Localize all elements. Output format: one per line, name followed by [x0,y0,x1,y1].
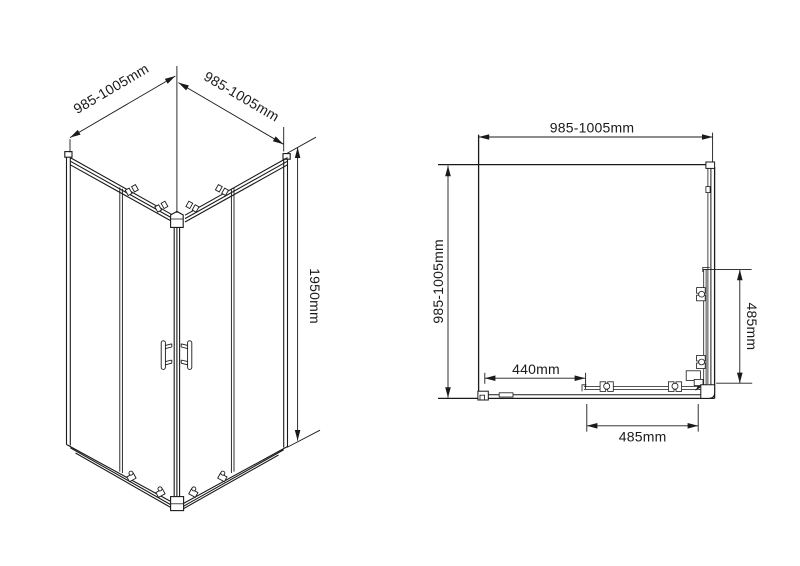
iso-dimension-labels: 985-1005mm 985-1005mm 1950mm [70,60,322,324]
plan-corner-block [701,385,715,399]
iso-dim-right-label: 985-1005mm [201,68,282,125]
plan-outline [438,135,715,400]
plan-top-right-wall-profile [706,162,715,168]
plan-view: 985-1005mm 985-1005mm 440mm 485mm 485mm [430,119,760,444]
iso-right-post [284,156,288,448]
iso-bottom-rail-right [184,447,288,509]
iso-left-post-cap [65,152,72,158]
iso-bottom-rail-left [67,445,171,508]
left-door-handle [161,341,165,370]
plan-dim-width-label: 985-1005mm [550,119,635,135]
iso-dim-left-label: 985-1005mm [70,60,151,117]
plan-right-bracket [706,187,710,193]
iso-dim-height-label: 1950mm [307,268,323,324]
plan-dim-door-width-right-label: 485mm [744,303,760,351]
plan-dim-depth-label: 985-1005mm [430,239,446,324]
iso-left-post [67,156,71,446]
plan-right-roller [697,288,706,301]
plan-track-bracket [499,393,513,397]
iso-right-panel-edge [231,187,234,473]
plan-bottom-roller [668,382,681,392]
iso-dimension-lines [70,66,320,447]
technical-drawing-canvas: 985-1005mm 985-1005mm 1950mm [0,0,800,566]
plan-dim-door-offset-label: 440mm [512,361,560,377]
right-door-handle [188,341,192,370]
iso-left-panel-edge [120,187,123,473]
plan-bottom-roller [600,382,613,392]
shower-enclosure-drawing: 985-1005mm 985-1005mm 1950mm [0,0,800,566]
iso-frame [65,152,290,511]
isometric-view: 985-1005mm 985-1005mm 1950mm [65,60,323,510]
iso-center-post [174,227,179,496]
plan-bottom-door [582,382,701,392]
iso-top-rail-right [185,158,288,222]
plan-right-roller [697,355,706,368]
plan-dim-door-width-bottom-label: 485mm [619,429,667,445]
